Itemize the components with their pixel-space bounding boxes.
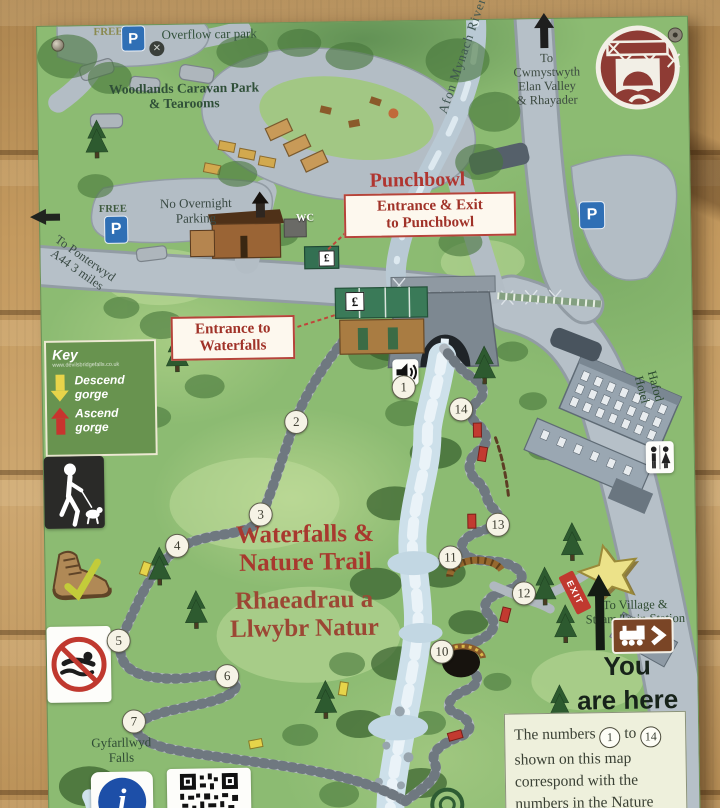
overflow-car-park-label: Overflow car park [147,26,271,42]
woodlands-caravan-park-label: Woodlands Caravan Park & Tearooms [88,79,280,112]
walking-boots-icon [45,540,118,607]
no-overnight-parking-label: No Overnight Parking [140,196,252,227]
waterfalls-entrance-box: Entrance to Waterfalls [171,315,296,361]
descend-arrow-icon [52,375,66,402]
note-text: The numbers [514,725,596,743]
gyfarllwyd-falls-label: Gyfarllwyd Falls [66,735,176,766]
sign-screw [51,39,64,52]
to-cwmystwyth-label: To Cwmystwyth Elan Valley & Rhayader [489,50,604,108]
key-descend-row: Descend gorge [52,373,148,402]
photo-of-trail-map-sign: FREE P Overflow car park ✕ Woodlands Car… [0,0,720,808]
qr-code [167,768,252,808]
toilets-icon [646,441,674,473]
devils-bridge-logo [589,21,686,118]
note-number-14: 14 [640,726,661,747]
punchbowl-entrance-box: Entrance & Exit to Punchbowl [344,191,517,238]
overflow-free-label: FREE [91,26,125,39]
descend-label: Descend gorge [74,374,124,401]
pinwheel-icon: ✕ [149,41,164,56]
numbers-note-box: The numbers 1 to 14 shown on this map co… [504,711,689,808]
free-parking-icon: P [104,216,128,244]
ticket-booth-pound-icon: £ [319,250,335,266]
key-ascend-row: Ascend gorge [53,406,149,435]
key-title: Key [52,345,148,363]
map-key: Key www.devilsbridgefalls.co.uk Descend … [44,339,158,457]
car-park-parking-icon: P [579,201,605,229]
dogs-on-lead-icon [44,456,105,529]
viewing-platform [432,789,462,808]
overflow-parking-icon: P [121,25,145,51]
information-icon: i [91,771,154,808]
ascend-label: Ascend gorge [75,407,119,434]
map-sign-board: FREE P Overflow car park ✕ Woodlands Car… [36,16,702,808]
you-are-here-label: You are here [547,649,708,719]
map-title-english: Waterfalls & Nature Trail [217,519,394,578]
key-url: www.devilsbridgefalls.co.uk [52,361,148,369]
note-number-1: 1 [599,727,620,748]
wc-label: WC [290,213,320,225]
map-title-welsh: Rhaeadrau a Llwybr Natur [204,585,405,644]
free-label: FREE [96,204,130,216]
ascend-arrow-icon [53,408,67,435]
no-swimming-icon [46,626,111,703]
punchbowl-title: Punchbowl [355,168,479,192]
kiosk-pound-icon: £ [345,292,364,311]
